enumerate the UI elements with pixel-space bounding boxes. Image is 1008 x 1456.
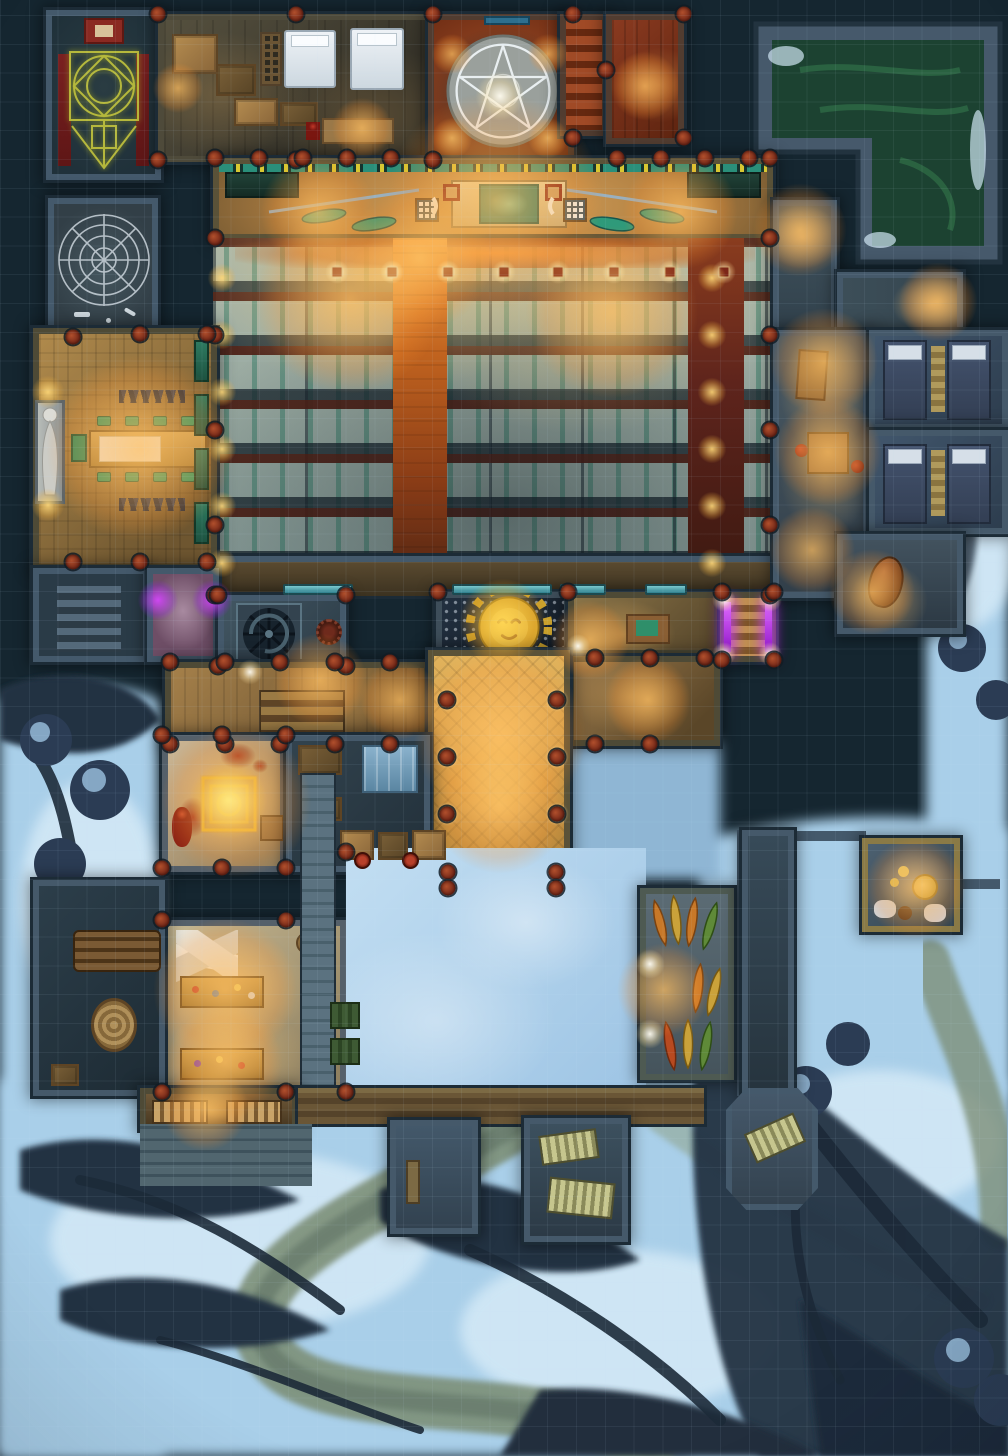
pillar-cap [440, 807, 455, 822]
light-o [749, 287, 899, 437]
pillar-cap [151, 7, 166, 22]
pillar-cap [208, 231, 223, 246]
pillar-cap [698, 151, 713, 166]
light-o [345, 50, 645, 350]
light-g [692, 429, 732, 469]
pillar-cap [566, 131, 581, 146]
pillar-cap [767, 653, 782, 668]
pillar-cap [763, 231, 778, 246]
light-g [692, 372, 732, 412]
light-o [883, 247, 993, 357]
light-o [599, 925, 729, 1055]
pillar-cap [66, 555, 81, 570]
light-o [812, 532, 932, 652]
pillar-cap [218, 655, 233, 670]
pillar-cap [383, 655, 398, 670]
pillar-cap [339, 845, 354, 860]
pillar-cap [550, 693, 565, 708]
light-s [176, 748, 280, 852]
markers-layer [0, 0, 1008, 1456]
pillar-cap [151, 153, 166, 168]
light-o [845, 818, 985, 958]
pillar-cap [208, 518, 223, 533]
light-o [10, 318, 270, 578]
light-g [692, 543, 732, 583]
light-sq [707, 255, 741, 289]
light-g [202, 372, 242, 412]
light-g [692, 315, 732, 355]
light-o [535, 585, 645, 695]
light-sq [375, 255, 409, 289]
light-o [753, 377, 903, 527]
pillar-cap [279, 1085, 294, 1100]
pillar-cap [550, 807, 565, 822]
light-g [692, 486, 732, 526]
pillar-cap [155, 728, 170, 743]
pillar-cap [215, 861, 230, 876]
light-w [629, 943, 671, 985]
light-o [255, 615, 385, 745]
pillar-cap [155, 1085, 170, 1100]
pillar-cap [273, 655, 288, 670]
pillar-cap [440, 693, 455, 708]
pillar-cap [643, 737, 658, 752]
pillar-cap [550, 750, 565, 765]
pillar-cap [155, 913, 170, 928]
pillar-cap [677, 131, 692, 146]
pillar-cap [549, 865, 564, 880]
pillar-cap [296, 151, 311, 166]
pillar-cap [763, 518, 778, 533]
light-o [597, 38, 693, 134]
pillar-cap [66, 330, 81, 345]
pillar-cap [133, 327, 148, 342]
pillar-cap [200, 327, 215, 342]
pillar-cap [279, 913, 294, 928]
pillar-cap [698, 651, 713, 666]
light-sq [487, 255, 521, 289]
pillar-cap [441, 881, 456, 896]
pillar-cap [328, 737, 343, 752]
light-sq [320, 255, 354, 289]
light-w [629, 1013, 671, 1055]
pillar-cap [643, 651, 658, 666]
light-s [445, 564, 561, 680]
pillar-cap [200, 555, 215, 570]
pillar-cap [742, 151, 757, 166]
light-g [25, 482, 71, 528]
light-sq [597, 255, 631, 289]
light-o [405, 710, 595, 900]
pillar-cap [588, 737, 603, 752]
pillar-cap [208, 423, 223, 438]
light-o [220, 170, 480, 430]
light-o [424, 26, 480, 82]
light-o [345, 645, 455, 755]
battle-map [0, 0, 1008, 1456]
pillar-cap [339, 588, 354, 603]
light-g [25, 369, 71, 415]
pillar-cap [566, 7, 581, 22]
pillar-cap [133, 555, 148, 570]
light-o [380, 615, 620, 855]
pillar-cap [211, 588, 226, 603]
light-p [131, 573, 185, 627]
pillar-cap [610, 151, 625, 166]
pillar-cap [340, 151, 355, 166]
light-o [145, 982, 305, 1142]
pillar-cap [208, 151, 223, 166]
pillar-cap [715, 585, 730, 600]
pillar-cap [339, 1085, 354, 1100]
pillar-cap [561, 585, 576, 600]
light-w [465, 61, 535, 131]
light-o [520, 26, 576, 82]
pillar-cap [599, 63, 614, 78]
light-g [692, 258, 732, 298]
pillar-cap [715, 653, 730, 668]
pillar-cap [163, 655, 178, 670]
pillar-cap [252, 151, 267, 166]
pillar-cap [441, 865, 456, 880]
light-o [145, 1048, 265, 1168]
light-sq [431, 255, 465, 289]
pillar-cap [328, 655, 343, 670]
light-g [202, 258, 242, 298]
pillar-cap [440, 750, 455, 765]
pillar-cap [763, 151, 778, 166]
pillar-cap [426, 153, 441, 168]
pillar-cap [763, 423, 778, 438]
light-g [202, 429, 242, 469]
light-w [232, 654, 268, 690]
light-sq [541, 255, 575, 289]
pillar-cap [549, 881, 564, 896]
light-o [143, 53, 213, 123]
pillar-cap [279, 861, 294, 876]
light-sq [653, 255, 687, 289]
pillar-cap [767, 585, 782, 600]
pillar-cap [426, 7, 441, 22]
pillar-cap [677, 7, 692, 22]
pillar-cap [588, 651, 603, 666]
pillar-cap [431, 585, 446, 600]
pillar-cap [155, 861, 170, 876]
light-o [492, 192, 732, 432]
pillar-cap [383, 737, 398, 752]
pillar-cap [215, 728, 230, 743]
light-o [320, 158, 520, 358]
pillar-cap [279, 728, 294, 743]
pillar-cap [763, 328, 778, 343]
light-o [735, 165, 865, 295]
pillar-cap [384, 151, 399, 166]
pillar-cap [654, 151, 669, 166]
pillar-cap [289, 7, 304, 22]
